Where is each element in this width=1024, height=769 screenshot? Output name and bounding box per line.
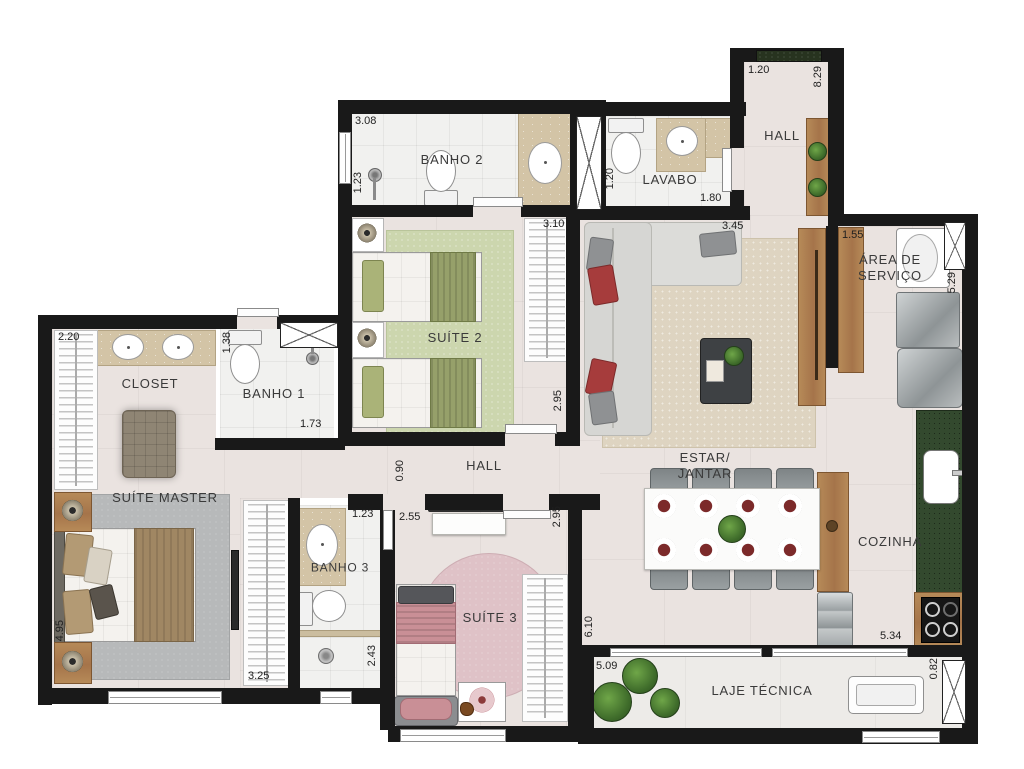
dim-banho2-h: 1.23 bbox=[352, 172, 364, 193]
banho3-door-leaf bbox=[383, 510, 393, 550]
wall bbox=[338, 100, 584, 114]
entry-doormat bbox=[756, 50, 822, 62]
place-setting-3 bbox=[736, 494, 760, 518]
laje-window bbox=[862, 731, 940, 743]
banho1-toilet-tank bbox=[228, 330, 262, 345]
lavabo-sink bbox=[666, 126, 698, 156]
suite2-label: SUÍTE 2 bbox=[428, 330, 483, 346]
banho3-label: BANHO 3 bbox=[311, 561, 369, 576]
suite2-wardrobe bbox=[524, 218, 570, 362]
dim-servico-w: 1.55 bbox=[842, 229, 863, 241]
banho1-label: BANHO 1 bbox=[243, 386, 306, 402]
dim-closet-w: 2.20 bbox=[58, 331, 79, 343]
dim-lavabo-w: 1.80 bbox=[700, 192, 721, 204]
dim-laje-w: 5.09 bbox=[596, 660, 617, 672]
sofa-pillow-gray-1 bbox=[699, 230, 737, 258]
banho3-toilet-bowl bbox=[312, 590, 346, 622]
cozinha-laje-window-1 bbox=[610, 648, 762, 657]
sofa-pillow-gray-3 bbox=[588, 390, 618, 425]
wall bbox=[215, 438, 345, 450]
master-lamp-2 bbox=[60, 649, 85, 674]
dim-master-h: 4.95 bbox=[54, 620, 66, 641]
estar-jantar-label: ESTAR/ JANTAR bbox=[678, 450, 732, 483]
dim-hall-h: 8.29 bbox=[812, 66, 824, 87]
master-window bbox=[108, 691, 222, 704]
place-setting-2 bbox=[694, 494, 718, 518]
hall-plant-1 bbox=[808, 142, 827, 161]
suite3-toy bbox=[460, 702, 474, 716]
lavabo-toilet-tank bbox=[608, 118, 644, 133]
dim-banho1-h: 1.38 bbox=[221, 332, 233, 353]
banho1-vent-panel bbox=[280, 322, 338, 348]
dim-master-w: 3.25 bbox=[248, 670, 269, 682]
place-setting-8 bbox=[778, 538, 802, 562]
suite3-window bbox=[400, 729, 506, 742]
wall bbox=[604, 102, 746, 116]
dim-estar-w: 3.45 bbox=[722, 220, 743, 232]
lavabo-door-leaf bbox=[722, 148, 732, 192]
banho2-toilet-tank bbox=[424, 190, 458, 206]
hall-intimo-label: HALL bbox=[466, 458, 502, 474]
wall bbox=[338, 205, 578, 217]
cooktop-burner-1 bbox=[925, 602, 940, 617]
suite3-desk bbox=[432, 513, 506, 535]
closet-rack bbox=[54, 330, 98, 490]
banho2-door-leaf bbox=[473, 197, 523, 207]
closet-sink-2 bbox=[162, 334, 194, 360]
wall bbox=[828, 48, 844, 226]
suite2-door bbox=[505, 432, 555, 446]
closet-label: CLOSET bbox=[122, 376, 179, 392]
coffee-table-plant bbox=[724, 346, 744, 366]
banho3-toilet-tank bbox=[298, 592, 313, 626]
dim-suite2-w: 3.10 bbox=[543, 218, 564, 230]
wall bbox=[578, 206, 750, 220]
banho3-shower-divider bbox=[297, 630, 383, 637]
dim-hall-intimo-h: 0.90 bbox=[394, 460, 406, 481]
corridor-window bbox=[320, 691, 352, 704]
banho3-door bbox=[383, 494, 425, 510]
banho2-label: BANHO 2 bbox=[421, 152, 484, 168]
suite2-bed-1-pillow bbox=[362, 260, 384, 312]
master-door-leaf bbox=[231, 550, 239, 630]
suite2-bed-2-blanket bbox=[430, 358, 476, 428]
floor-plan: BANHO 2 LAVABO HALL ÁREA DE SERVIÇO SUÍT… bbox=[0, 0, 1024, 769]
refrigerator bbox=[897, 348, 963, 408]
place-setting-6 bbox=[694, 538, 718, 562]
hall-entrada-label: HALL bbox=[764, 128, 800, 144]
suite2-lamp-1 bbox=[356, 222, 378, 244]
suite3-bed-pillow bbox=[398, 586, 454, 604]
suite3-door bbox=[503, 494, 549, 510]
wall bbox=[566, 206, 580, 446]
area-servico-label: ÁREA DE SERVIÇO bbox=[858, 252, 922, 285]
suite2-bed-2-pillow bbox=[362, 366, 384, 418]
banho2-window bbox=[339, 132, 351, 184]
suite3-wardrobe bbox=[522, 574, 568, 722]
banho1-door bbox=[237, 315, 277, 329]
laje-plant-2 bbox=[622, 658, 658, 694]
sideboard-handle bbox=[815, 250, 818, 380]
suite3-label: SUÍTE 3 bbox=[463, 610, 518, 626]
cooktop-burner-3 bbox=[925, 622, 940, 637]
dim-servico-h: 5.29 bbox=[946, 272, 958, 293]
dim-suite2-h: 2.95 bbox=[552, 390, 564, 411]
servico-counter bbox=[838, 227, 864, 373]
dim-lavabo-h: 1.20 bbox=[604, 168, 616, 189]
wall bbox=[826, 226, 838, 368]
cooktop-burner-4 bbox=[943, 622, 958, 637]
banho2-sink bbox=[528, 142, 562, 184]
master-closet-rack bbox=[243, 500, 290, 686]
island-decor bbox=[826, 520, 838, 532]
dim-banho3-h: 2.43 bbox=[366, 645, 378, 666]
dim-suite3-w: 2.55 bbox=[399, 511, 420, 523]
suite3-door-leaf bbox=[503, 510, 551, 519]
lavabo-label: LAVABO bbox=[643, 172, 698, 188]
hall-console bbox=[806, 118, 830, 216]
hall-plant-2 bbox=[808, 178, 827, 197]
dim-cozinha-h: 6.10 bbox=[583, 616, 595, 637]
laje-vent-panel bbox=[942, 660, 966, 724]
oven-tower bbox=[817, 592, 853, 652]
wall bbox=[38, 315, 52, 705]
dim-banho3-w: 1.23 bbox=[352, 508, 373, 520]
dim-banho2-w: 3.08 bbox=[355, 115, 376, 127]
coffee-table-books bbox=[706, 360, 724, 382]
washing-machine bbox=[896, 292, 960, 348]
suite2-lamp-2 bbox=[356, 327, 378, 349]
dim-suite3-h: 2.95 bbox=[551, 506, 563, 527]
place-setting-4 bbox=[778, 494, 802, 518]
servico-vent-panel bbox=[944, 222, 966, 270]
wall bbox=[288, 498, 300, 690]
vent-shaft-panel bbox=[576, 116, 602, 210]
place-setting-7 bbox=[736, 538, 760, 562]
kitchen-sink bbox=[923, 450, 959, 504]
lavabo-door bbox=[730, 148, 744, 190]
cozinha-laje-window-2 bbox=[772, 648, 908, 657]
dim-laje-h: 0.82 bbox=[928, 658, 940, 679]
cooktop-burner-2 bbox=[943, 602, 958, 617]
kitchen-island bbox=[817, 472, 849, 592]
banho1-toilet-bowl bbox=[230, 344, 260, 384]
laje-plant-3 bbox=[650, 688, 680, 718]
place-setting-5 bbox=[652, 538, 676, 562]
master-bed-blanket bbox=[134, 528, 194, 642]
banho3-shower-icon bbox=[318, 648, 334, 664]
dim-cozinha-w: 5.34 bbox=[880, 630, 901, 642]
dining-centerpiece bbox=[718, 515, 746, 543]
estar-sideboard bbox=[798, 228, 826, 406]
master-lamp-1 bbox=[60, 498, 85, 523]
cozinha-label: COZINHA bbox=[858, 534, 922, 550]
suite2-door-leaf bbox=[505, 424, 557, 434]
suite2-bed-1-blanket bbox=[430, 252, 476, 322]
suite3-bed-blanket bbox=[396, 602, 456, 644]
place-setting-1 bbox=[652, 494, 676, 518]
banho1-door-leaf bbox=[237, 308, 279, 317]
closet-sink-1 bbox=[112, 334, 144, 360]
suite-master-label: SUÍTE MASTER bbox=[112, 490, 218, 506]
suite3-bench-cushion bbox=[400, 698, 452, 720]
dim-hall-w: 1.20 bbox=[748, 64, 769, 76]
banho2-shower-arm bbox=[373, 178, 376, 200]
laje-tecnica-label: LAJE TÉCNICA bbox=[711, 683, 812, 699]
ac-condenser-grille bbox=[856, 684, 916, 706]
dim-banho1-w: 1.73 bbox=[300, 418, 321, 430]
closet-pouf bbox=[122, 410, 176, 478]
